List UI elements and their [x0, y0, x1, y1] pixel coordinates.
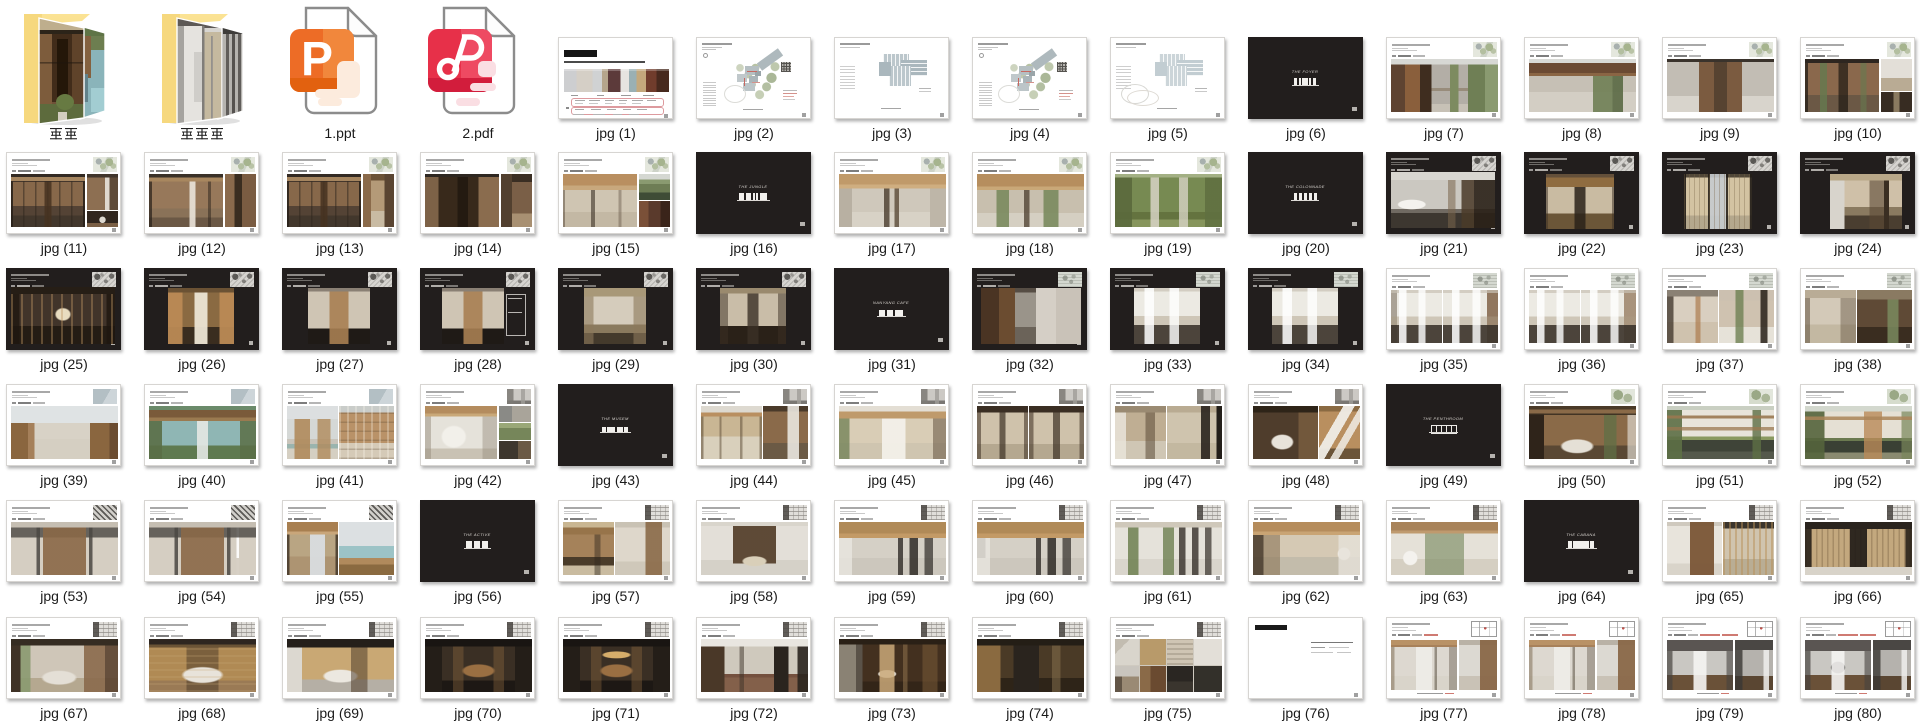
svg-text:P: P [301, 33, 333, 86]
